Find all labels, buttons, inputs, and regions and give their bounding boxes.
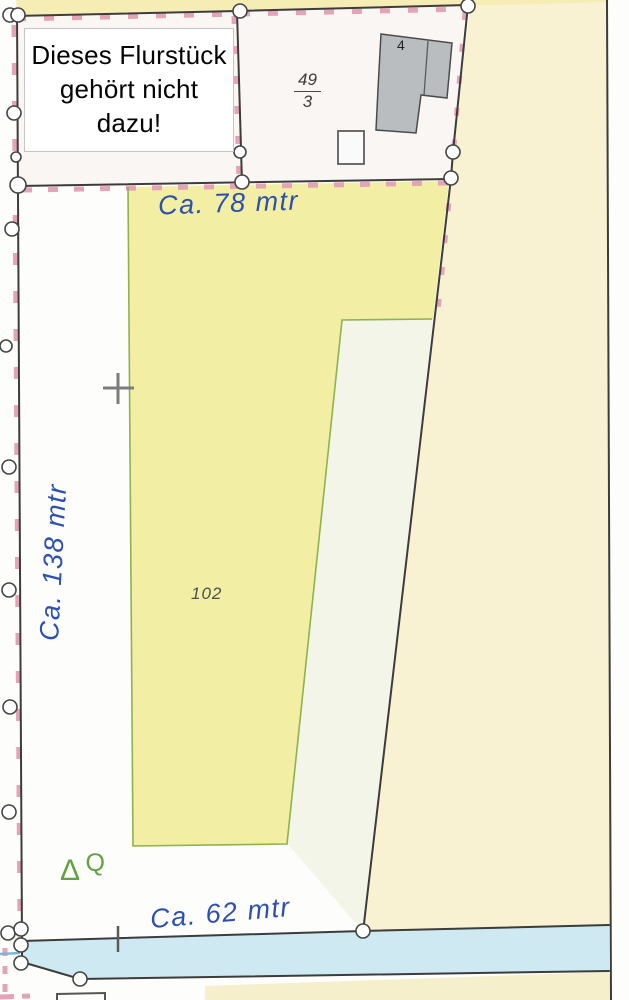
outbuilding-outline: [338, 131, 364, 164]
exclusion-note-line2: gehört nicht dazu!: [25, 73, 233, 141]
parcel-49-3-denominator: 3: [294, 92, 321, 112]
building-number-label: 4: [397, 37, 405, 53]
cadastral-map: Dieses Flurstück gehört nicht dazu! 49 3…: [0, 0, 629, 1000]
measurement-top: Ca. 78 mtr: [158, 186, 300, 222]
q-symbol-icon: Q: [86, 849, 105, 878]
triangle-symbol-icon: Δ: [60, 854, 80, 888]
tree-symbol: Δ Q: [60, 854, 105, 888]
parcel-49-3-label: 49 3: [294, 70, 321, 111]
parcel-49-3-numerator: 49: [294, 70, 321, 92]
parcel-102-label: 102: [191, 584, 222, 604]
exclusion-note-box: Dieses Flurstück gehört nicht dazu!: [24, 28, 234, 152]
water-line-west: [0, 953, 20, 954]
exclusion-note-line1: Dieses Flurstück: [31, 39, 226, 73]
